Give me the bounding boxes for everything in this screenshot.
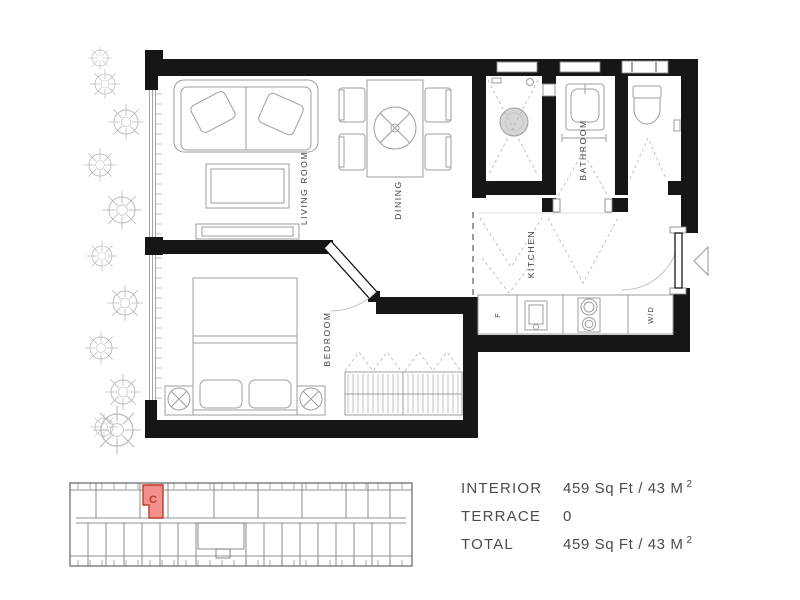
area-value: 459 Sq Ft / 43 M2 <box>563 535 693 553</box>
fridge-label: F <box>493 312 502 318</box>
kitchen-counter <box>478 295 673 334</box>
living-room: LIVING ROOM <box>174 80 318 239</box>
area-row-interior: INTERIOR 459 Sq Ft / 43 M2 <box>461 479 711 507</box>
bathroom-suite: BATHROOM <box>488 78 680 196</box>
closet <box>345 352 462 415</box>
dining-chairs <box>339 88 451 170</box>
area-label: INTERIOR <box>461 480 563 497</box>
sofa <box>174 80 318 152</box>
bedroom-label: BEDROOM <box>322 311 332 366</box>
area-label: TOTAL <box>461 536 563 553</box>
highlighted-unit-label: C <box>149 494 157 506</box>
entry-door <box>622 227 708 294</box>
shower <box>488 78 538 176</box>
dining-table <box>367 80 423 177</box>
kitchen-sink <box>525 301 547 330</box>
toilet <box>633 86 680 131</box>
bed <box>193 278 297 415</box>
dining-label: DINING <box>393 180 403 219</box>
foliage-strip <box>84 46 145 454</box>
area-value: 459 Sq Ft / 43 M2 <box>563 479 693 497</box>
dining-area: DINING <box>339 80 451 220</box>
tv-console <box>196 224 299 239</box>
bedroom: BEDROOM <box>165 241 462 415</box>
stove <box>578 298 600 332</box>
kitchen-label: KITCHEN <box>526 230 536 279</box>
area-row-terrace: TERRACE 0 <box>461 507 711 535</box>
area-value: 0 <box>563 507 575 525</box>
kitchen: F W/D KITCHEN <box>473 212 673 334</box>
nightstands <box>165 386 325 415</box>
key-plan: C <box>70 483 412 566</box>
area-label: TERRACE <box>461 508 563 525</box>
coffee-table <box>206 164 289 208</box>
entry-arrow-icon <box>694 247 708 275</box>
bathroom-label: BATHROOM <box>578 119 588 180</box>
area-table: INTERIOR 459 Sq Ft / 43 M2 TERRACE 0 TOT… <box>461 479 711 563</box>
area-row-total: TOTAL 459 Sq Ft / 43 M2 <box>461 535 711 563</box>
washer-dryer-label: W/D <box>646 306 655 324</box>
living-room-label: LIVING ROOM <box>299 151 309 225</box>
floorplan-page: LIVING ROOM DINING <box>0 0 800 600</box>
